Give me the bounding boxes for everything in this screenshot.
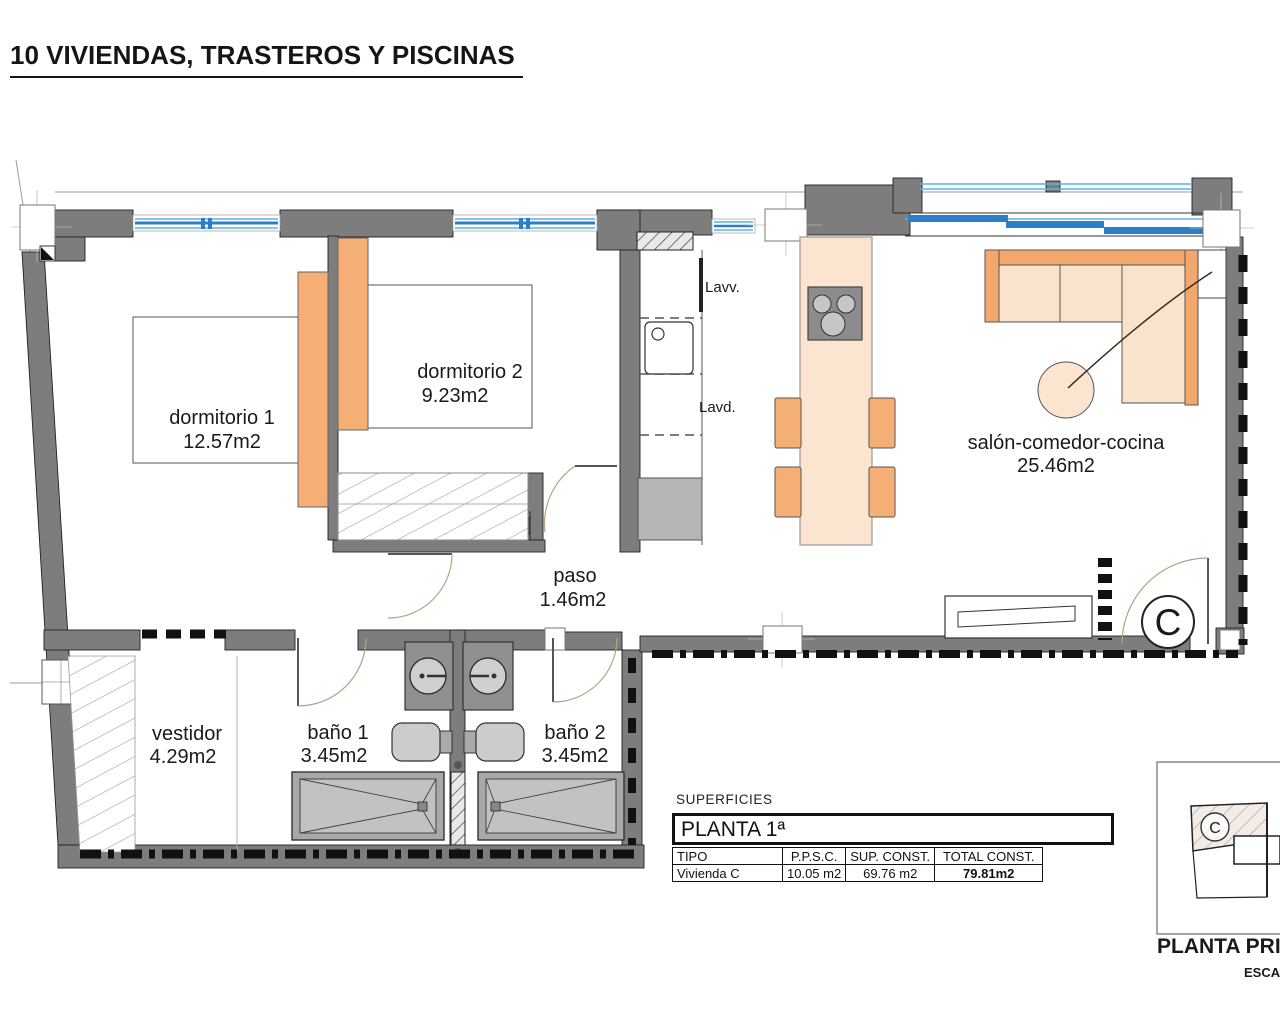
page-title: 10 VIVIENDAS, TRASTEROS Y PISCINAS [10, 40, 523, 78]
door-bath1 [298, 638, 366, 706]
round-table [1038, 362, 1094, 418]
bath1-sink [405, 642, 453, 710]
drain-icon [40, 246, 55, 261]
room-label-salon: salón-comedor-cocina [968, 432, 1166, 454]
chair [775, 398, 801, 448]
door-dorm1 [388, 554, 452, 618]
room-area-vestidor: 4.29m2 [150, 746, 217, 768]
room-area-dorm2: 9.23m2 [422, 385, 489, 407]
surfaces-caption: SUPERFICIES [676, 792, 773, 807]
room-label-paso: paso [553, 565, 596, 587]
key-plan-unit-letter: C [1209, 820, 1221, 837]
room-label-bath2: baño 2 [544, 722, 605, 744]
col-header-total-const: TOTAL CONST. [935, 848, 1043, 865]
surfaces-table: TIPO P.P.S.C. SUP. CONST. TOTAL CONST. V… [672, 847, 1043, 882]
col-header-tipo: TIPO [673, 848, 783, 865]
unit-badge: C [1142, 596, 1194, 648]
col-header-ppsc: P.P.S.C. [783, 848, 846, 865]
bath2-toilet [464, 723, 524, 761]
pillar [1220, 630, 1240, 650]
room-label-dorm2: dormitorio 2 [417, 361, 523, 383]
cell-total-const: 79.81m2 [935, 865, 1043, 882]
tv-console [945, 596, 1092, 638]
key-plan: C PLANTA PRIM ESCAL [1157, 762, 1280, 980]
laundry-column [638, 250, 703, 545]
cell-tipo: Vivienda C [673, 865, 783, 882]
pillar [545, 628, 565, 650]
room-area-bath2: 3.45m2 [542, 745, 609, 767]
room-area-bath1: 3.45m2 [301, 745, 368, 767]
unit-letter: C [1155, 602, 1182, 643]
washer-icon [645, 322, 693, 374]
window-dorm2-icon [453, 215, 597, 231]
window-laundry-icon [712, 219, 755, 233]
bath1-shower [292, 772, 444, 840]
kitchen-island [800, 237, 872, 545]
wardrobe-dorm1 [298, 272, 328, 507]
bath2-sink [463, 642, 513, 710]
side-table [1198, 250, 1226, 298]
room-area-paso: 1.46m2 [540, 589, 607, 611]
cell-sup-const: 69.76 m2 [846, 865, 935, 882]
closet-dorm2 [338, 473, 528, 540]
bath2-shower [478, 772, 624, 840]
chair [869, 467, 895, 517]
table-row: Vivienda C 10.05 m2 69.76 m2 79.81m2 [673, 865, 1043, 882]
room-area-dorm1: 12.57m2 [183, 431, 261, 453]
key-plan-title: PLANTA PRIM [1157, 935, 1280, 958]
label-lavv: Lavv. [705, 279, 740, 296]
room-area-salon: 25.46m2 [1017, 455, 1095, 477]
door-dorm2 [545, 466, 617, 532]
chair [869, 398, 895, 448]
room-label-vestidor: vestidor [152, 723, 222, 745]
appliance-box [638, 478, 702, 540]
room-label-bath1: baño 1 [307, 722, 368, 744]
cell-ppsc: 10.05 m2 [783, 865, 846, 882]
bath1-toilet [392, 723, 452, 761]
hob-icon [808, 287, 862, 340]
floor-header: PLANTA 1ª [681, 818, 785, 841]
floor-header-box: PLANTA 1ª [672, 813, 1114, 845]
floor-plan-drawing: C dormitorio 1 12.57m2 dormitorio 2 9.23… [0, 0, 1280, 1024]
table-header-row: TIPO P.P.S.C. SUP. CONST. TOTAL CONST. [673, 848, 1043, 865]
room-label-dorm1: dormitorio 1 [169, 407, 275, 429]
col-header-sup-const: SUP. CONST. [846, 848, 935, 865]
window-dorm1-icon [133, 215, 280, 231]
key-plan-scale-label: ESCAL [1244, 965, 1280, 980]
label-lavd: Lavd. [699, 399, 736, 416]
wardrobe-dorm2 [338, 238, 368, 430]
furniture [68, 237, 1226, 852]
chair [775, 467, 801, 517]
